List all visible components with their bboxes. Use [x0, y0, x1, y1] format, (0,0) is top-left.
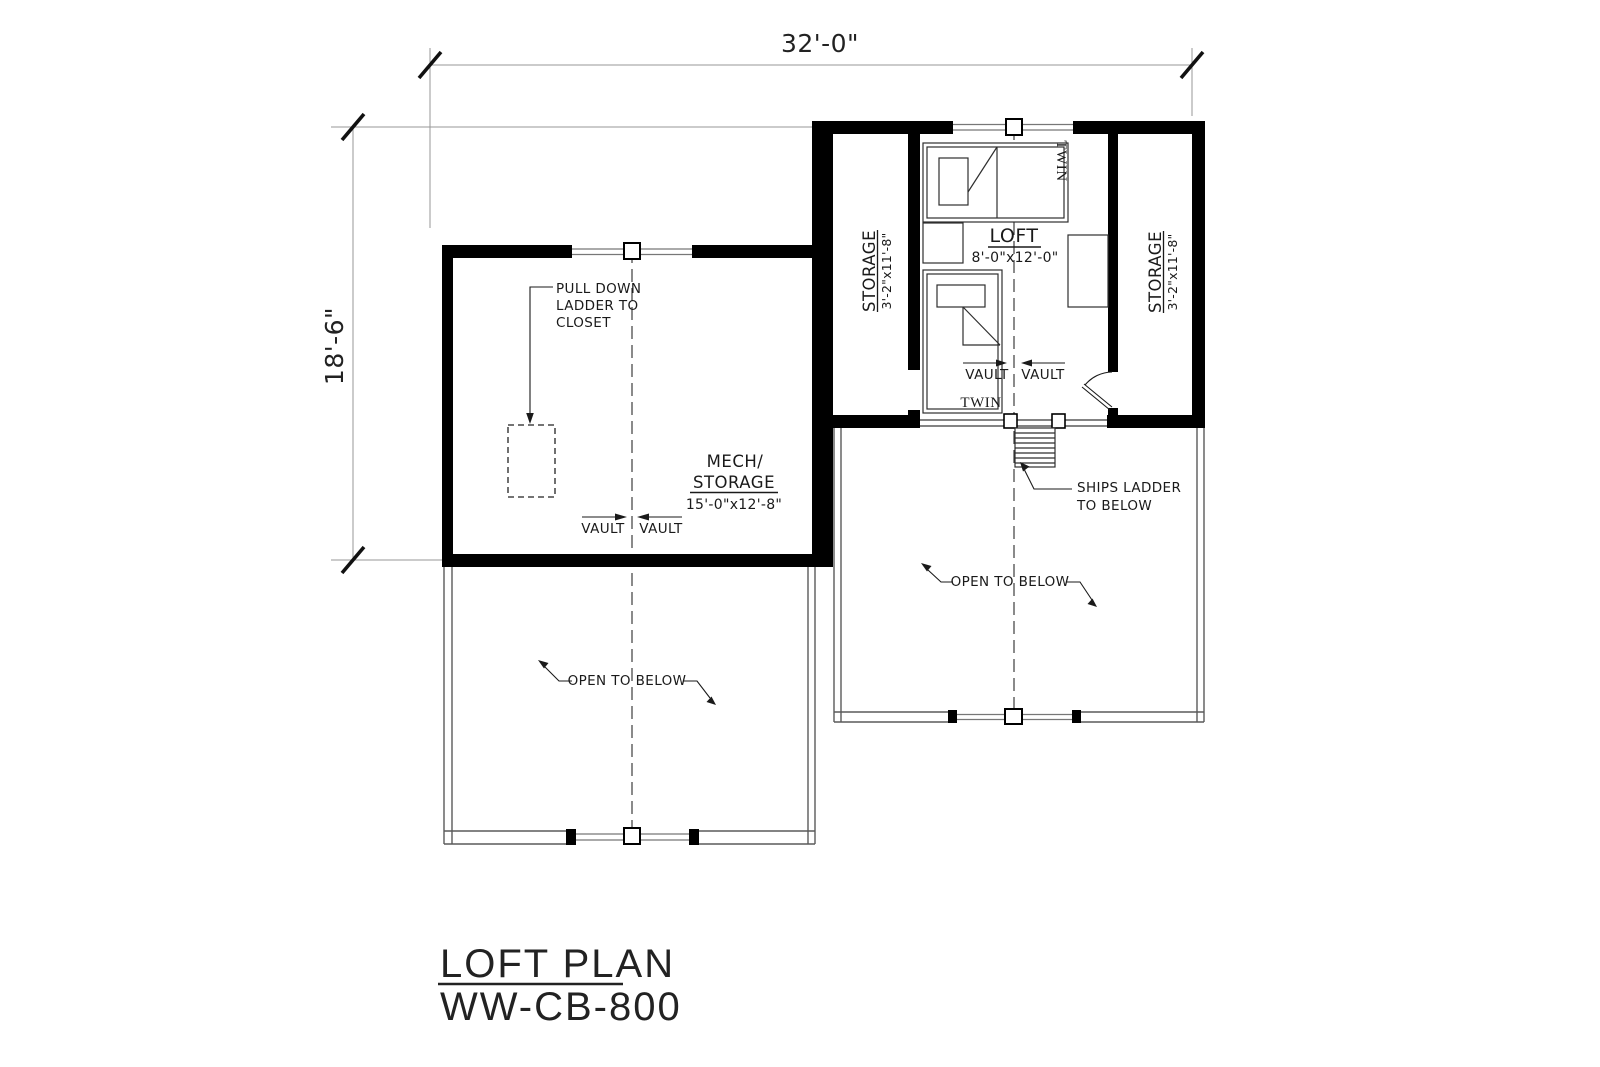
pulldown-ladder-closet [508, 425, 555, 497]
mech-name-line1: MECH/ [707, 452, 764, 471]
floor-plan-sheet: 32'-0" 18'-6" [0, 0, 1600, 1067]
storage-right-name: STORAGE [1146, 231, 1165, 313]
sheet-title: LOFT PLAN [440, 942, 675, 986]
storage-left-name: STORAGE [860, 230, 879, 312]
twin-bed-bottom [923, 270, 1002, 413]
ships-ladder-stairs [1015, 428, 1055, 467]
pulldown-line1: PULL DOWN [556, 281, 641, 297]
plan-svg: 32'-0" 18'-6" [0, 0, 1600, 1067]
dimension-height-label: 18'-6" [320, 307, 349, 385]
open-to-below-left: OPEN TO BELOW [538, 660, 716, 705]
open-below-label: OPEN TO BELOW [568, 673, 687, 689]
window-loft-top [953, 119, 1073, 135]
storage-door [1082, 372, 1112, 410]
dimension-width-label: 32'-0" [781, 29, 859, 58]
open-below-label: OPEN TO BELOW [951, 574, 1070, 590]
storage-left-size: 3'-2"x11'-8" [879, 233, 894, 310]
pulldown-ladder-annotation: PULL DOWN LADDER TO CLOSET [526, 281, 641, 424]
window-open-left-bottom [566, 828, 699, 845]
twin-bottom-label: TWIN [960, 395, 1001, 411]
window-mech-top [572, 243, 692, 259]
loft-size: 8'-0"x12'-0" [971, 250, 1058, 266]
open-to-below-right: OPEN TO BELOW [921, 563, 1097, 607]
loft-name: LOFT [989, 225, 1038, 247]
title-block: LOFT PLAN WW-CB-800 [438, 942, 682, 1029]
nightstand [923, 223, 963, 263]
mech-size: 15'-0"x12'-8" [686, 497, 782, 513]
mech-name-line2: STORAGE [693, 473, 775, 492]
vault-label: VAULT [965, 367, 1009, 383]
twin-bed-top [923, 143, 1068, 222]
window-open-right-bottom [948, 709, 1081, 724]
storage-right-size: 3'-2"x11'-8" [1165, 234, 1180, 311]
mech-storage-label: MECH/ STORAGE 15'-0"x12'-8" [686, 452, 782, 513]
vault-label: VAULT [639, 521, 683, 537]
dresser [1068, 235, 1108, 307]
ships-ladder-line1: SHIPS LADDER [1077, 480, 1181, 496]
ships-ladder-line2: TO BELOW [1076, 498, 1152, 514]
pulldown-line2: LADDER TO [556, 298, 639, 314]
open-below-left-walls [444, 567, 815, 845]
vault-label: VAULT [581, 521, 625, 537]
plan-number: WW-CB-800 [440, 985, 682, 1029]
storage-left-label: STORAGE 3'-2"x11'-8" [860, 230, 894, 312]
loft-room-label: LOFT 8'-0"x12'-0" [971, 225, 1058, 266]
pulldown-line3: CLOSET [556, 315, 611, 331]
storage-right-label: STORAGE 3'-2"x11'-8" [1146, 231, 1180, 313]
ships-ladder-annotation: SHIPS LADDER TO BELOW [1020, 462, 1181, 514]
twin-top-label: TWIN [1053, 140, 1069, 181]
vault-label: VAULT [1021, 367, 1065, 383]
